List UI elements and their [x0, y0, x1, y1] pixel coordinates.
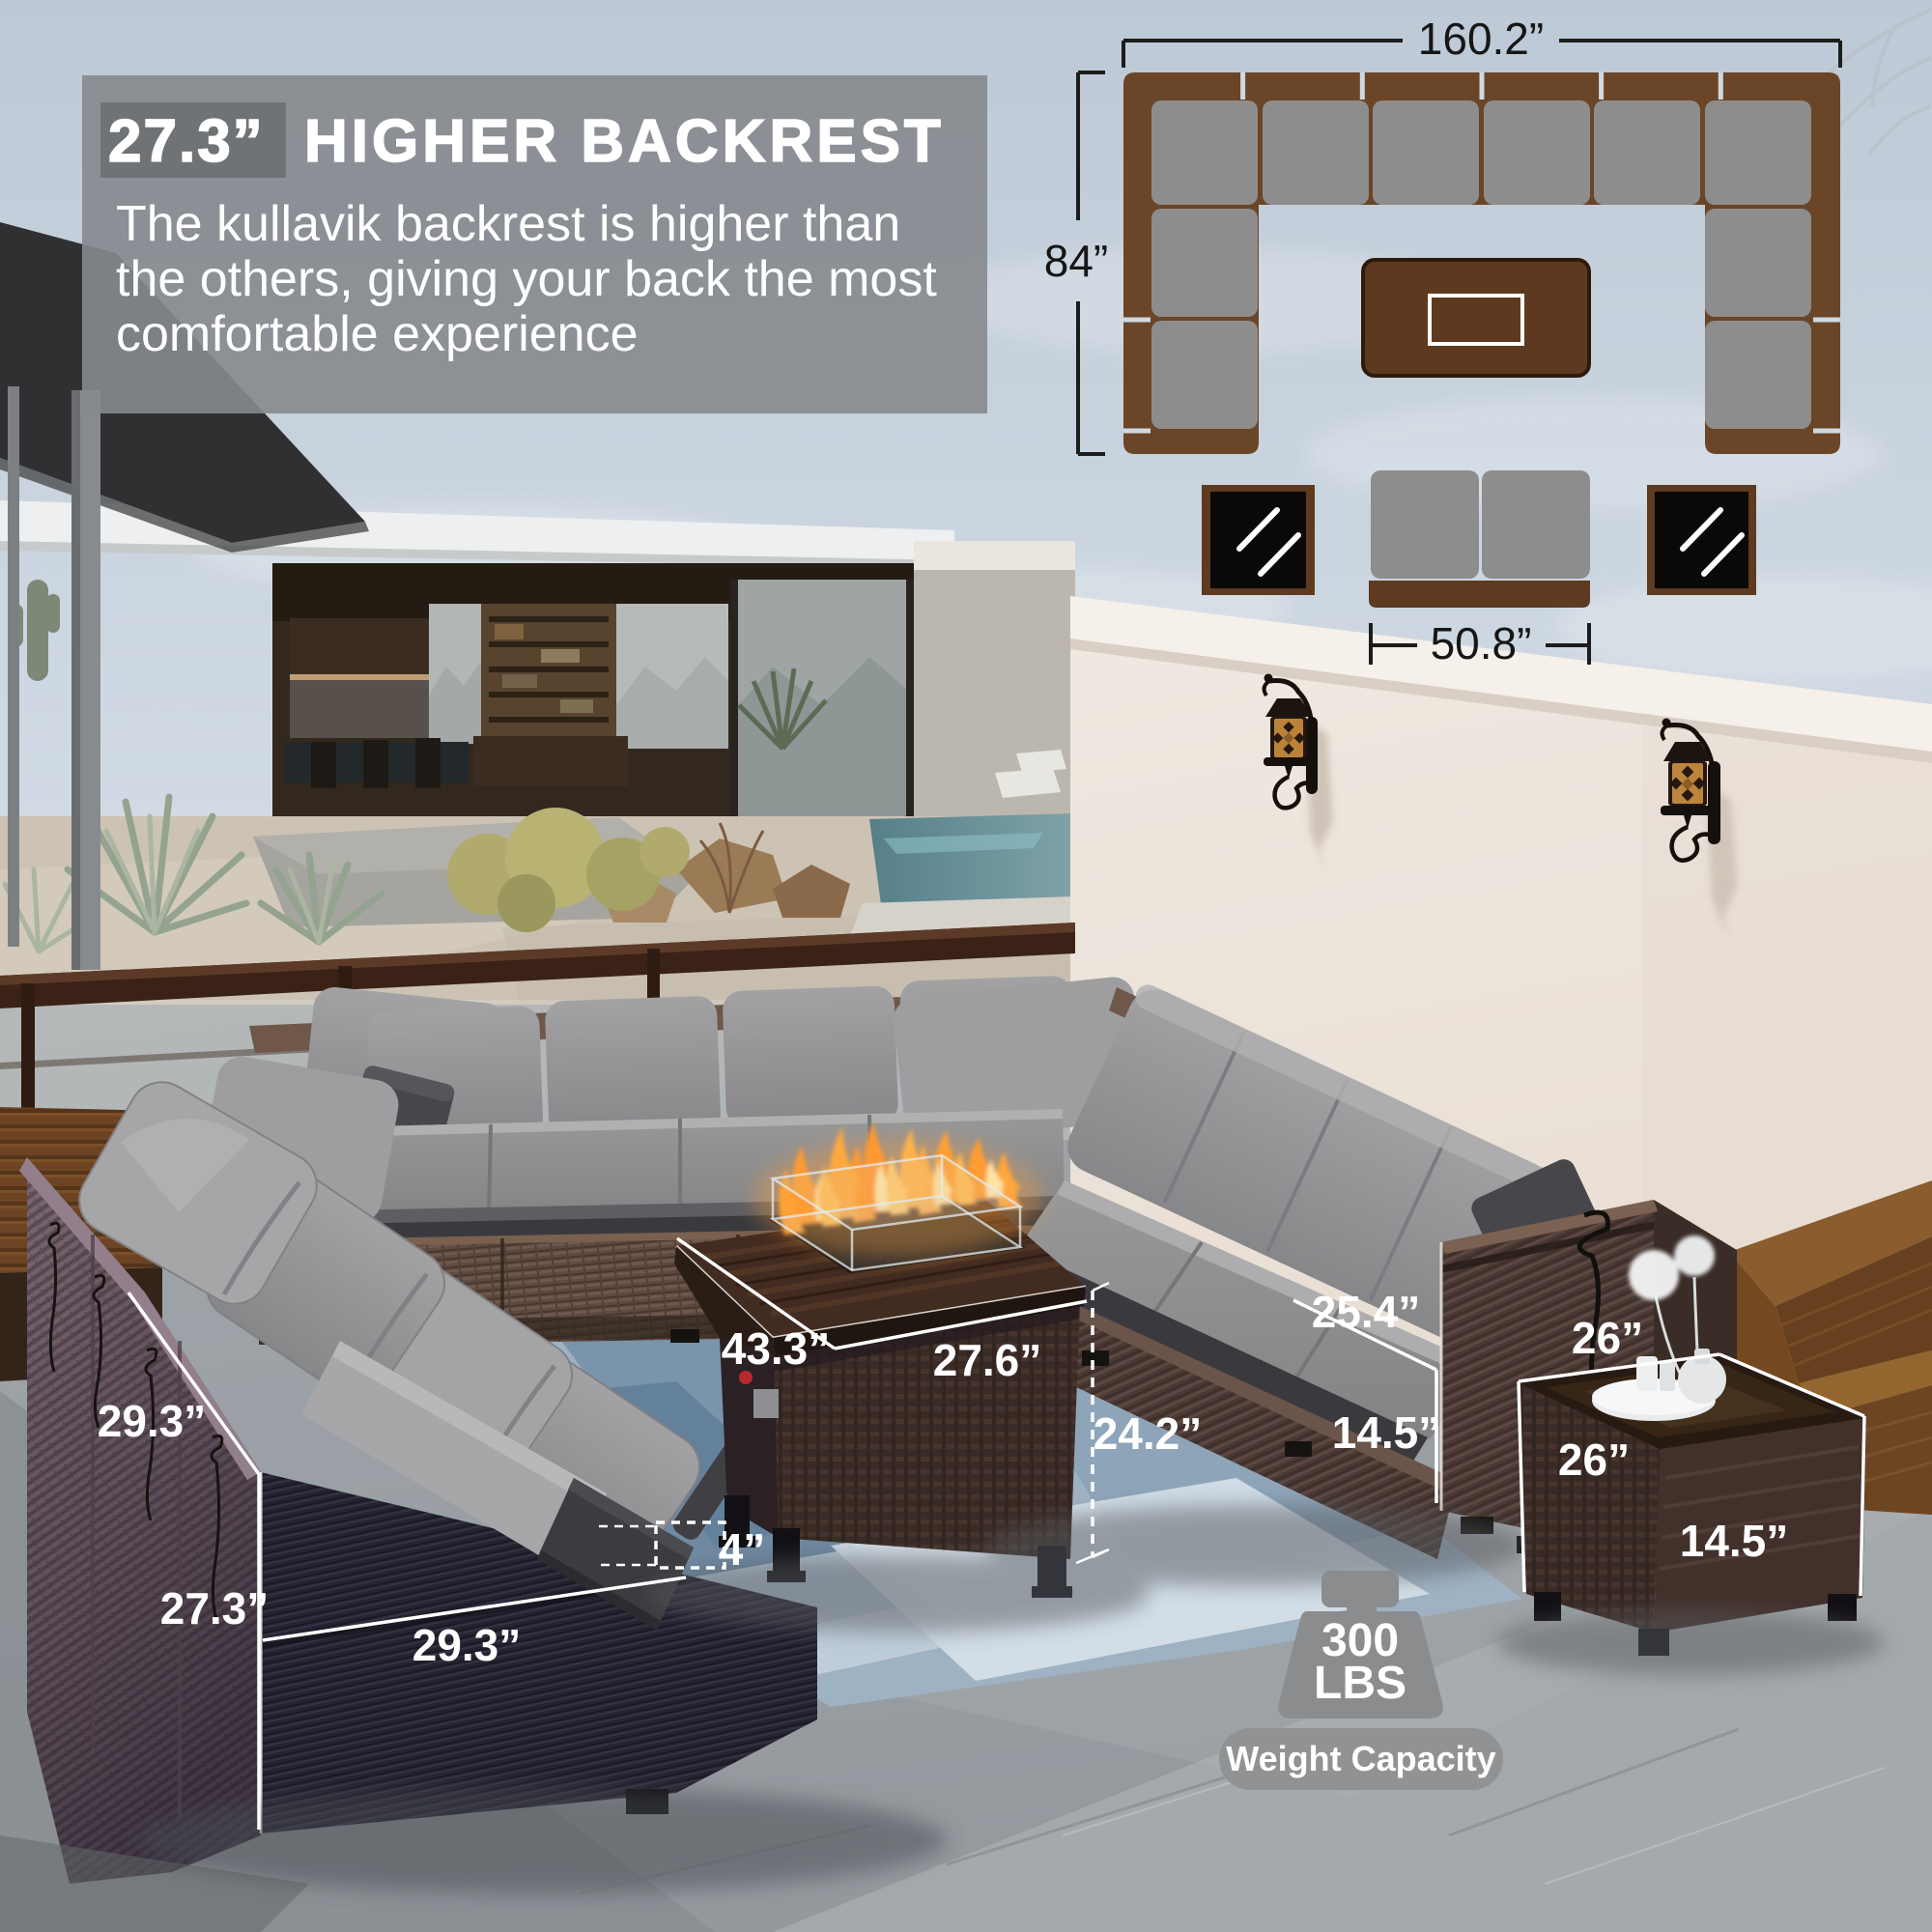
svg-text:27.6”: 27.6” — [933, 1335, 1042, 1385]
svg-text:43.3”: 43.3” — [722, 1323, 831, 1374]
svg-text:4”: 4” — [719, 1524, 766, 1575]
svg-text:The kullavik backrest is highe: The kullavik backrest is higher than — [116, 196, 900, 252]
svg-text:24.2”: 24.2” — [1094, 1408, 1203, 1459]
svg-text:comfortable experience: comfortable experience — [116, 306, 639, 362]
svg-text:HIGHER BACKREST: HIGHER BACKREST — [304, 108, 945, 175]
svg-text:26”: 26” — [1572, 1313, 1643, 1363]
svg-text:84”: 84” — [1044, 236, 1108, 286]
svg-text:14.5”: 14.5” — [1332, 1407, 1441, 1458]
svg-text:27.3”: 27.3” — [108, 108, 265, 175]
svg-text:29.3”: 29.3” — [412, 1620, 522, 1670]
svg-text:26”: 26” — [1558, 1435, 1630, 1485]
svg-text:14.5”: 14.5” — [1680, 1516, 1789, 1566]
svg-text:29.3”: 29.3” — [98, 1396, 207, 1446]
svg-text:the others, giving your back t: the others, giving your back the most — [116, 251, 937, 307]
svg-text:50.8”: 50.8” — [1431, 618, 1532, 668]
svg-text:27.3”: 27.3” — [160, 1583, 270, 1634]
svg-text:160.2”: 160.2” — [1418, 14, 1544, 64]
svg-text:LBS: LBS — [1314, 1658, 1406, 1709]
svg-text:25.4”: 25.4” — [1312, 1287, 1421, 1337]
svg-text:Weight Capacity: Weight Capacity — [1226, 1739, 1495, 1778]
